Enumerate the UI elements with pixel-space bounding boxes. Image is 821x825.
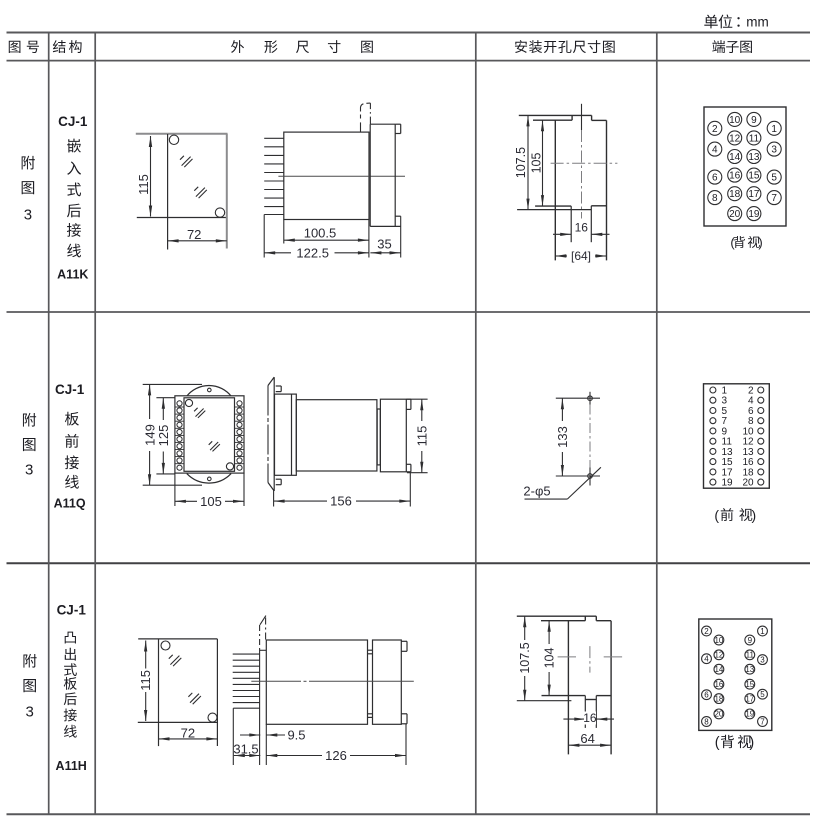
svg-text:115: 115 <box>138 670 153 691</box>
svg-text:2: 2 <box>704 627 709 636</box>
svg-text:14: 14 <box>714 665 723 674</box>
svg-text:10: 10 <box>714 636 723 645</box>
svg-text:): ) <box>751 507 756 523</box>
svg-text:126: 126 <box>325 748 347 763</box>
svg-text:107.5: 107.5 <box>514 147 528 178</box>
svg-text:A11Q: A11Q <box>54 497 86 511</box>
svg-text:13: 13 <box>745 665 754 674</box>
svg-text:2: 2 <box>712 124 718 135</box>
svg-text:107.5: 107.5 <box>518 642 532 673</box>
svg-text:19: 19 <box>722 478 734 489</box>
svg-text:6: 6 <box>712 173 718 184</box>
svg-text:12: 12 <box>729 133 741 144</box>
svg-text:8: 8 <box>704 717 709 726</box>
svg-text:20: 20 <box>742 478 754 489</box>
svg-text:72: 72 <box>187 227 201 242</box>
svg-text:12: 12 <box>714 651 723 660</box>
svg-text:133: 133 <box>555 426 570 448</box>
svg-text:105: 105 <box>200 494 222 509</box>
svg-text:64: 64 <box>580 731 594 746</box>
svg-text:mm: mm <box>746 15 769 30</box>
svg-text:6: 6 <box>704 691 709 700</box>
svg-text:125: 125 <box>156 425 171 447</box>
svg-text:11: 11 <box>746 651 755 660</box>
svg-text:5: 5 <box>771 173 777 184</box>
svg-text:CJ-1: CJ-1 <box>55 382 85 397</box>
svg-text:9: 9 <box>748 636 753 645</box>
svg-text:16: 16 <box>575 221 589 235</box>
svg-text:115: 115 <box>415 426 430 447</box>
svg-text:20: 20 <box>714 710 723 719</box>
svg-text:[64]: [64] <box>571 249 591 263</box>
svg-text:3: 3 <box>760 655 765 664</box>
svg-text:3: 3 <box>24 206 32 223</box>
svg-text:115: 115 <box>136 174 151 195</box>
svg-text:19: 19 <box>748 209 760 220</box>
svg-text:9: 9 <box>751 115 757 126</box>
svg-text:7: 7 <box>771 193 777 204</box>
svg-text:104: 104 <box>543 648 557 669</box>
svg-text:156: 156 <box>330 494 352 509</box>
svg-text:16: 16 <box>583 711 597 725</box>
svg-text:(: ( <box>715 735 720 751</box>
svg-text:10: 10 <box>729 115 741 126</box>
svg-text:4: 4 <box>712 145 718 156</box>
svg-text:CJ-1: CJ-1 <box>57 602 87 617</box>
svg-text:CJ-1: CJ-1 <box>58 114 88 129</box>
svg-text:3: 3 <box>25 462 33 479</box>
svg-text:72: 72 <box>181 726 195 741</box>
svg-text:19: 19 <box>745 710 754 719</box>
svg-text:16: 16 <box>714 680 723 689</box>
svg-text:13: 13 <box>748 152 760 163</box>
svg-text:17: 17 <box>745 694 754 703</box>
svg-text:14: 14 <box>729 152 741 163</box>
svg-text:1: 1 <box>760 627 765 636</box>
svg-text:A11K: A11K <box>57 268 88 282</box>
svg-text:3: 3 <box>771 145 777 156</box>
svg-text:100.5: 100.5 <box>304 226 337 241</box>
svg-text:4: 4 <box>704 655 709 664</box>
svg-text:35: 35 <box>377 236 391 251</box>
svg-text:15: 15 <box>745 680 754 689</box>
svg-text:11: 11 <box>749 133 760 144</box>
svg-text:8: 8 <box>712 193 718 204</box>
svg-text:122.5: 122.5 <box>296 245 329 260</box>
svg-text:1: 1 <box>771 124 777 135</box>
svg-text:A11H: A11H <box>56 759 87 773</box>
svg-text:18: 18 <box>714 694 723 703</box>
svg-text:): ) <box>749 735 754 751</box>
svg-text:18: 18 <box>729 189 741 200</box>
svg-text:20: 20 <box>729 209 741 220</box>
svg-text:105: 105 <box>529 153 543 174</box>
svg-text:9.5: 9.5 <box>287 728 305 743</box>
svg-text:7: 7 <box>760 717 765 726</box>
svg-text:15: 15 <box>748 171 760 182</box>
svg-text:2-φ5: 2-φ5 <box>523 484 550 499</box>
svg-text:5: 5 <box>760 690 765 699</box>
svg-text:16: 16 <box>729 171 741 182</box>
svg-text:): ) <box>758 235 762 250</box>
svg-text:17: 17 <box>748 189 760 200</box>
svg-text:31.5: 31.5 <box>233 742 258 757</box>
svg-text:(: ( <box>714 507 719 523</box>
svg-text:3: 3 <box>26 704 34 721</box>
